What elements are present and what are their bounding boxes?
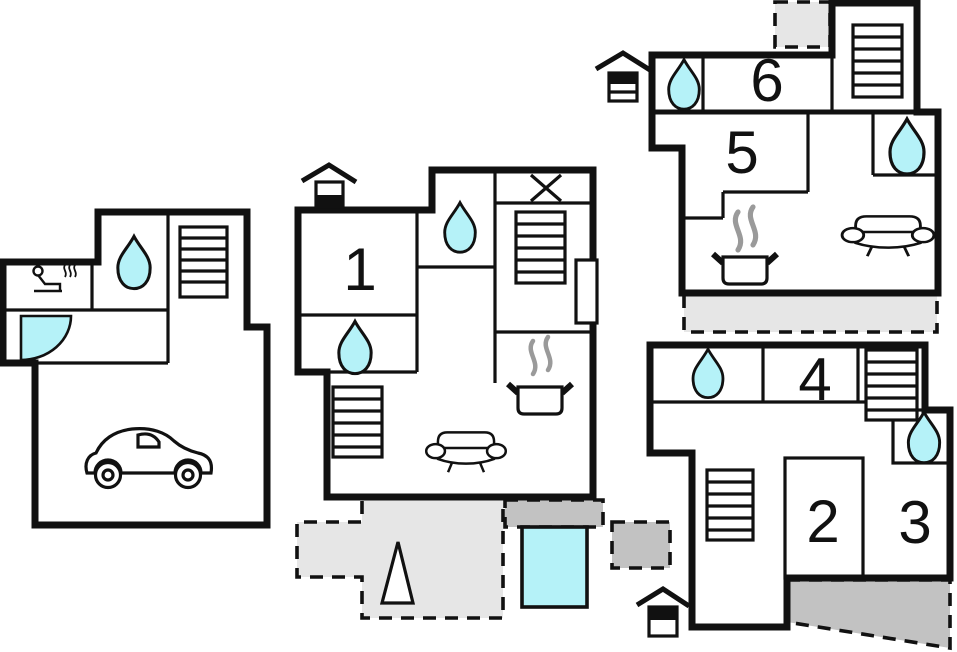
room-label-1: 1 [343,236,376,303]
stairs-icon [866,350,917,420]
room-label-3: 3 [898,489,931,556]
stairs-icon [853,25,902,97]
terrace-lower-trapezoid [787,580,950,648]
floor-plan-canvas: 1 6 5 [0,0,957,652]
pool [522,527,587,607]
door-opening [576,260,597,323]
stairs-icon [333,387,382,457]
room-label-4: 4 [798,346,831,413]
room-label-6: 6 [750,47,783,114]
room-label-5: 5 [725,119,758,186]
building-main-house: 1 [298,170,597,497]
entrance-icon [596,53,650,101]
floor-plan-svg: 1 6 5 [0,0,957,652]
terrace-dark-strip [505,500,603,527]
building-garage [3,212,267,525]
entrance-icon [302,165,356,207]
stairs-icon [516,212,565,283]
terrace-dark-box [612,522,670,568]
stairs-icon [707,470,753,540]
stairs-icon [180,227,227,297]
entrance-icon [637,589,689,636]
room-label-2: 2 [806,488,839,555]
terrace-upper-top-box [775,2,830,47]
